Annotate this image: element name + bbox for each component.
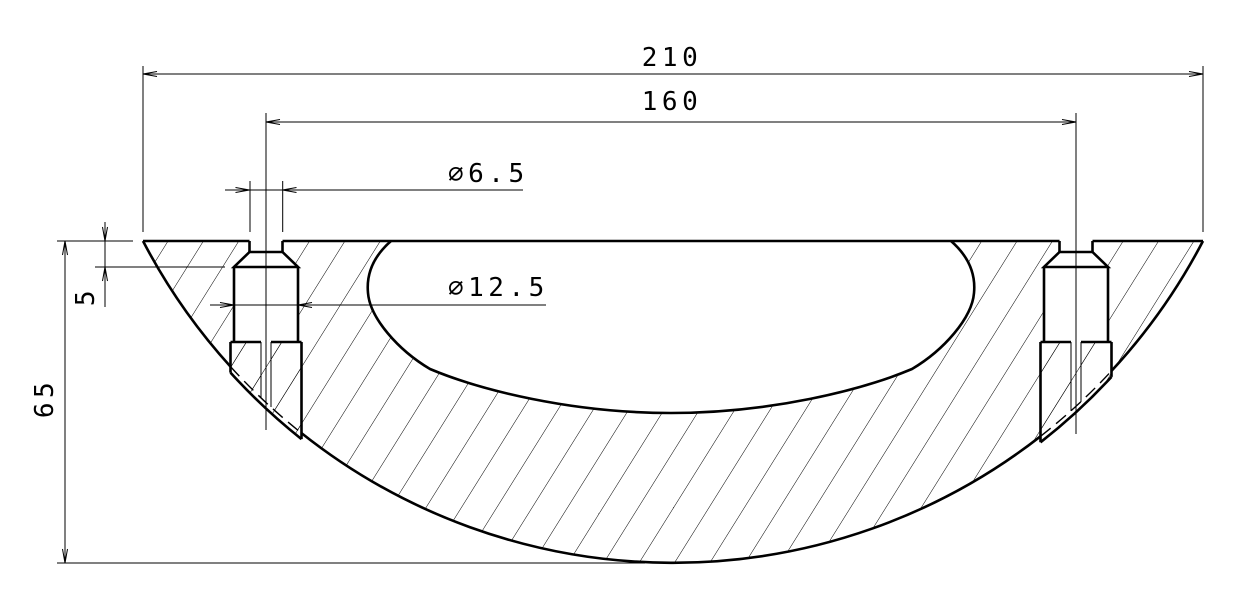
dim-text-hole-diameter: ∅6.5 [448, 159, 529, 189]
dim-text-overall-height: 65 [30, 378, 60, 418]
section-drawing: 210 160 ∅6.5 ∅12.5 5 65 [0, 0, 1249, 600]
dim-text-counterbore-diameter: ∅12.5 [448, 273, 549, 303]
dim-text-hole-spacing: 160 [642, 87, 702, 117]
dim-text-countersink-depth: 5 [71, 286, 101, 306]
dim-text-overall-width: 210 [642, 43, 702, 73]
drawing-sheet: 210 160 ∅6.5 ∅12.5 5 65 [0, 0, 1249, 600]
